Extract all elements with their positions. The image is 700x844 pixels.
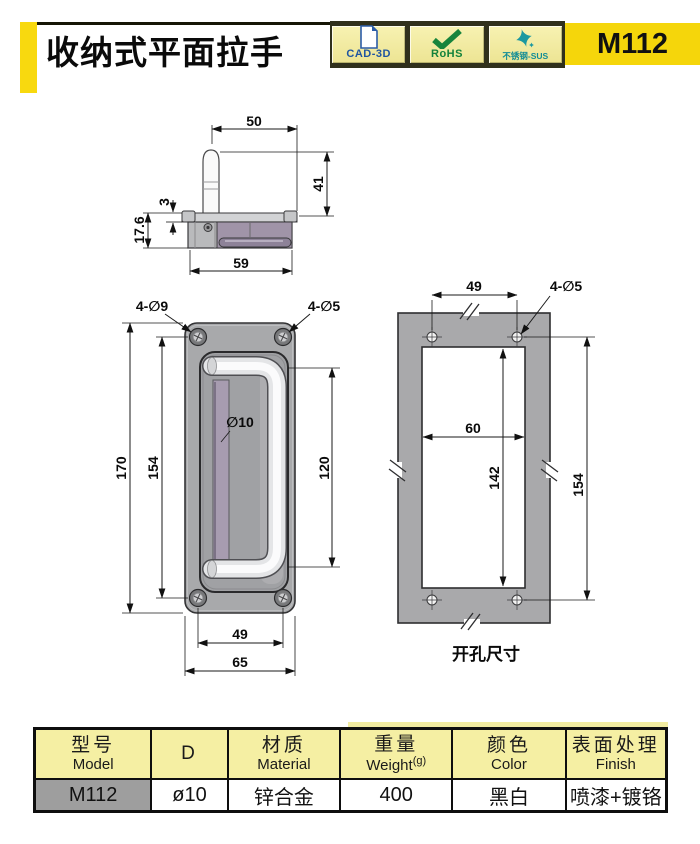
cad-3d-document-icon: [359, 25, 379, 49]
badge-cad-3d-label: CAD-3D: [346, 49, 391, 60]
col-header-color-en: Color: [491, 757, 527, 773]
dim-hole-span-vertical: 154: [145, 456, 161, 480]
cell-finish: 喷漆+镀铬: [565, 778, 665, 810]
dim-cutout-hole-span-h: 49: [466, 278, 482, 294]
dim-cutout-width: 60: [465, 420, 481, 436]
col-header-finish: 表面处理 Finish: [565, 730, 665, 778]
badge-cad-3d[interactable]: CAD-3D: [332, 26, 405, 63]
col-header-model-en: Model: [73, 757, 114, 773]
cutout-caption: 开孔尺寸: [452, 644, 520, 664]
dim-depth: 17.6: [131, 216, 147, 243]
col-header-weight-zh: 重量: [374, 734, 418, 756]
label-bar-diameter: ∅10: [226, 414, 254, 430]
col-header-model: 型号 Model: [36, 730, 150, 778]
header-accent-bar: [20, 22, 37, 93]
screw-hole: [275, 329, 292, 346]
spec-table: 型号 Model D 材质 Material 重量 Weight(g) 颜色 C…: [33, 727, 668, 813]
badge-stainless-sus-label: 不锈钢-SUS: [502, 52, 548, 61]
cell-material: 锌合金: [227, 778, 339, 810]
col-header-material-zh: 材质: [262, 735, 306, 757]
stainless-sparkle-icon: [513, 28, 537, 52]
col-header-material-en: Material: [257, 757, 310, 773]
screw-hole: [190, 329, 207, 346]
label-small-holes: 4-∅5: [308, 298, 340, 314]
col-header-finish-en: Finish: [596, 757, 636, 773]
dim-hole-span-horizontal: 49: [232, 626, 248, 642]
technical-drawings: 50 41 3 17.6 59: [0, 110, 700, 710]
screw-hole: [275, 590, 292, 607]
page-title: 收纳式平面拉手: [46, 26, 284, 74]
screw-hole: [190, 590, 207, 607]
cell-d: ø10: [150, 778, 227, 810]
cell-weight: 400: [339, 778, 451, 810]
badge-strip: CAD-3D RoHS 不锈钢-SUS: [330, 21, 565, 68]
col-header-d-label: D: [181, 743, 198, 765]
badge-stainless-sus[interactable]: 不锈钢-SUS: [489, 26, 562, 63]
dim-plate-width: 65: [232, 654, 248, 670]
spec-table-header-row: 型号 Model D 材质 Material 重量 Weight(g) 颜色 C…: [36, 730, 665, 778]
dim-cutout-height: 142: [486, 466, 502, 490]
spec-table-data-row: M112 ø10 锌合金 400 黑白 喷漆+镀铬: [36, 778, 665, 810]
col-header-color: 颜色 Color: [451, 730, 564, 778]
cutout-view-drawing: 49 4-∅5 60 142 154 开孔尺寸: [389, 278, 595, 664]
dim-height: 41: [310, 176, 326, 192]
front-view-drawing: 4-∅9 4-∅5 ∅10 170 154 120 49: [113, 298, 340, 676]
dim-cutout-hole-span-v: 154: [570, 473, 586, 497]
catalog-page: 收纳式平面拉手 CAD-3D RoHS: [0, 0, 700, 844]
col-header-model-zh: 型号: [71, 735, 115, 757]
dim-handle-span: 120: [316, 456, 332, 480]
dim-top-width: 50: [246, 113, 262, 129]
col-header-color-zh: 颜色: [487, 735, 531, 757]
col-header-material: 材质 Material: [227, 730, 339, 778]
rohs-checkmark-icon: [431, 28, 463, 49]
model-code-badge: M112: [565, 23, 700, 65]
badge-rohs-label: RoHS: [431, 49, 463, 60]
weight-unit: (g): [413, 755, 426, 767]
col-header-finish-zh: 表面处理: [572, 735, 660, 757]
col-header-weight: 重量 Weight(g): [339, 730, 451, 778]
col-header-weight-en: Weight(g): [366, 756, 426, 774]
badge-rohs[interactable]: RoHS: [410, 26, 483, 63]
dim-body-width: 59: [233, 255, 249, 271]
label-corner-holes: 4-∅9: [136, 298, 168, 314]
label-cutout-holes: 4-∅5: [550, 278, 582, 294]
dim-flange-thickness: 3: [156, 198, 172, 206]
cell-model: M112: [36, 778, 150, 810]
dim-plate-height: 170: [113, 456, 129, 480]
cell-color: 黑白: [451, 778, 564, 810]
side-view-drawing: 50 41 3 17.6 59: [131, 113, 334, 275]
col-header-d: D: [150, 730, 227, 778]
